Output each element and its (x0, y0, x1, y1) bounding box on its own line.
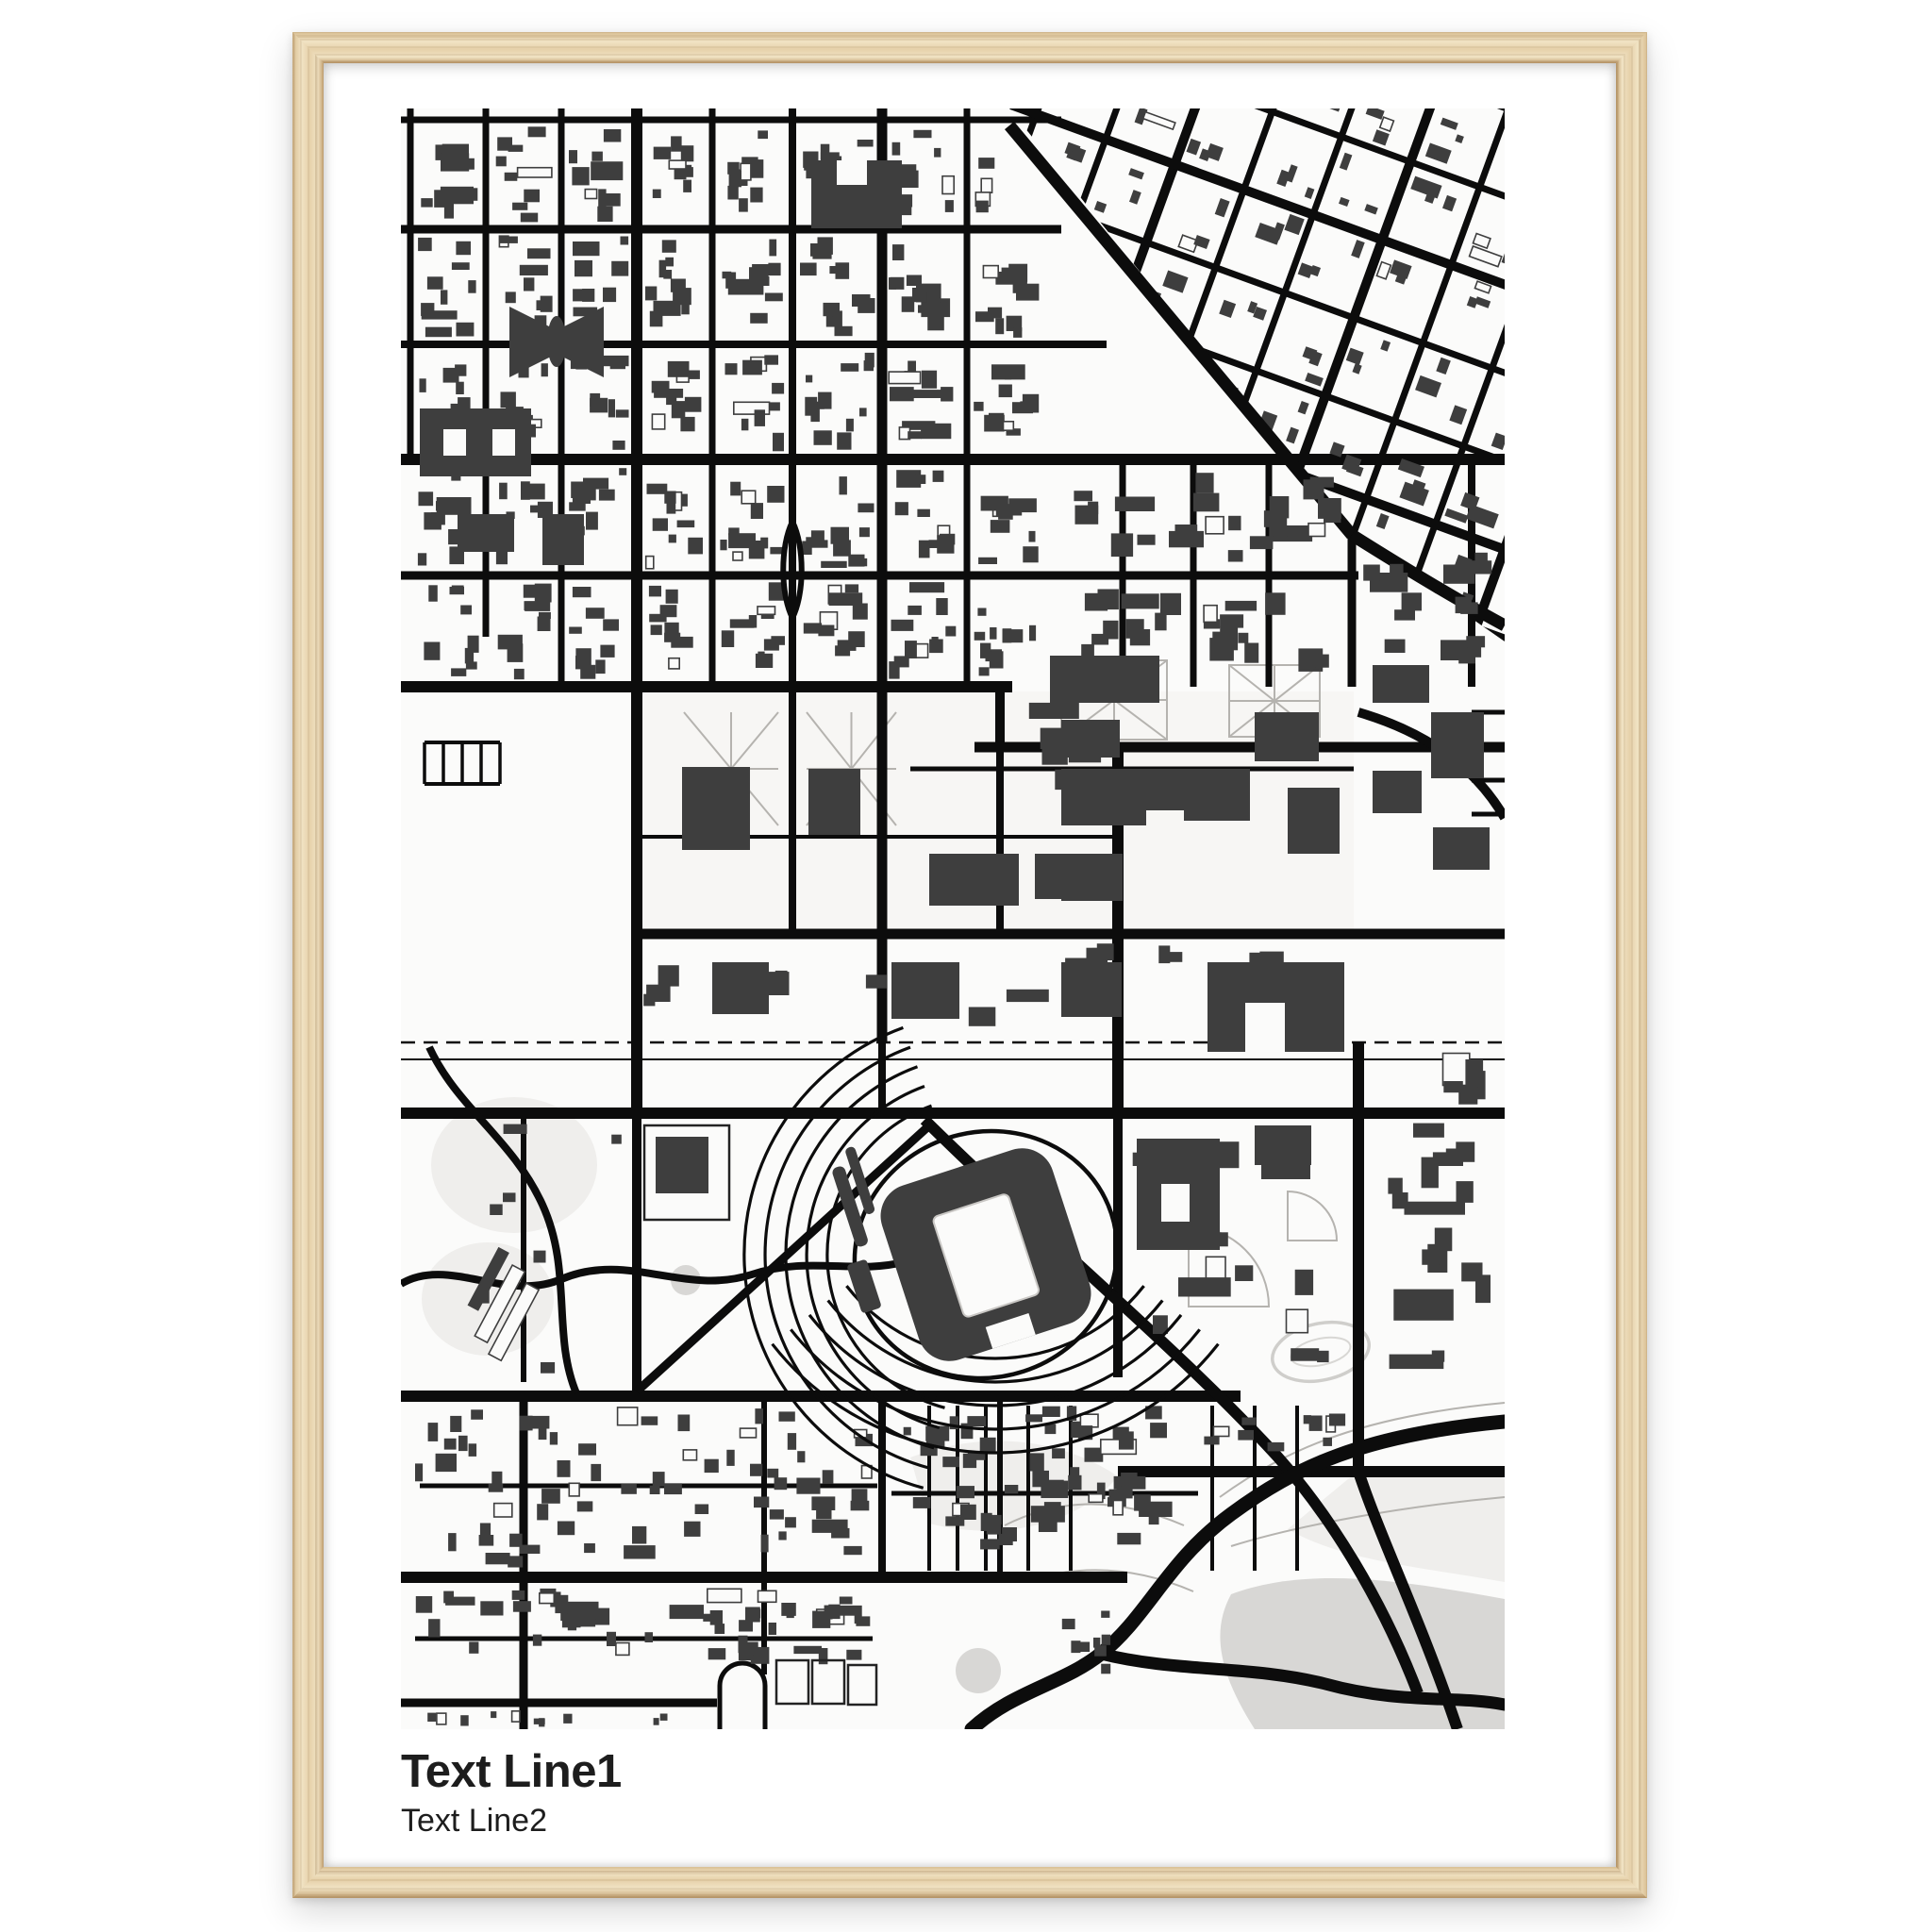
product-photo-background: Text Line1 Text Line2 (0, 0, 1932, 1932)
frame-right-stile (1616, 32, 1647, 1898)
poster-caption: Text Line1 Text Line2 (401, 1748, 622, 1837)
frame-bottom-rail (292, 1867, 1647, 1898)
frame-top-rail (292, 32, 1647, 63)
caption-line1: Text Line1 (401, 1748, 622, 1796)
caption-line2: Text Line2 (401, 1805, 622, 1837)
city-map (401, 108, 1505, 1729)
frame-left-stile (292, 32, 324, 1898)
poster-mat: Text Line1 Text Line2 (324, 63, 1616, 1867)
poster-frame: Text Line1 Text Line2 (292, 32, 1647, 1898)
